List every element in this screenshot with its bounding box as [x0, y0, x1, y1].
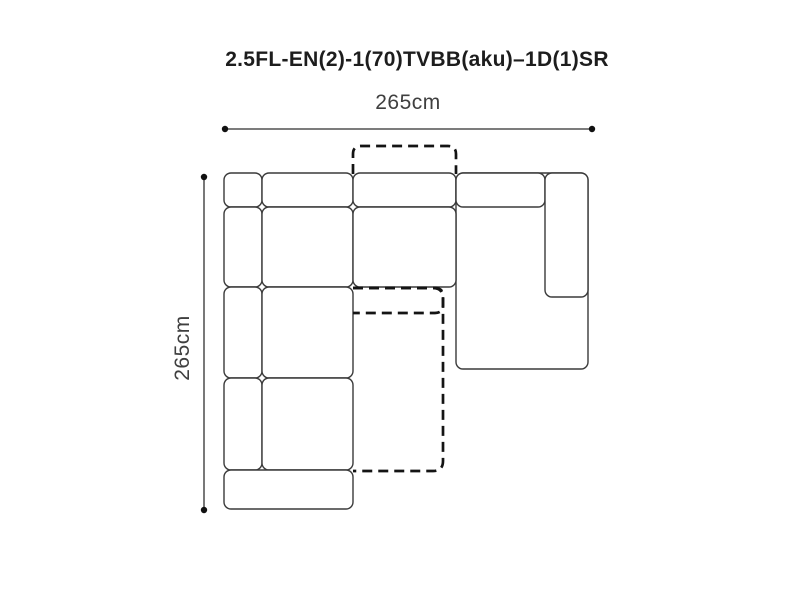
- bed-fold-section-dashed-outline: [353, 288, 443, 313]
- bed-pullout-extension-dashed-outline: [353, 288, 443, 471]
- back-cushion-left: [262, 173, 353, 207]
- width-dimension-line-start-dot: [222, 126, 228, 132]
- width-dimension-label: 265cm: [308, 91, 508, 115]
- depth-dimension-label: 265cm: [171, 315, 195, 381]
- seat-left-3: [262, 378, 353, 470]
- sofa-diagram-svg: [0, 0, 800, 600]
- depth-dimension-line-start-dot: [201, 174, 207, 180]
- left-armrest-mid-1: [224, 207, 262, 287]
- back-cushion-middle: [353, 173, 456, 207]
- seat-left-2: [262, 287, 353, 378]
- depth-dimension-line-end-dot: [201, 507, 207, 513]
- bed-backrest-extension-dashed-outline: [353, 146, 456, 174]
- right-armrest: [545, 173, 588, 297]
- model-code-title: 2.5FL-EN(2)-1(70)TVBB(aku)–1D(1)SR: [17, 48, 800, 72]
- front-rail: [224, 470, 353, 509]
- seat-left-1: [262, 207, 353, 287]
- left-armrest-mid-2: [224, 287, 262, 378]
- back-cushion-right: [456, 173, 545, 207]
- sofa-dimension-diagram: 2.5FL-EN(2)-1(70)TVBB(aku)–1D(1)SR 265cm…: [0, 0, 800, 600]
- left-armrest-top: [224, 173, 262, 207]
- width-dimension-line-end-dot: [589, 126, 595, 132]
- seat-middle: [353, 207, 456, 287]
- left-armrest-bottom: [224, 378, 262, 470]
